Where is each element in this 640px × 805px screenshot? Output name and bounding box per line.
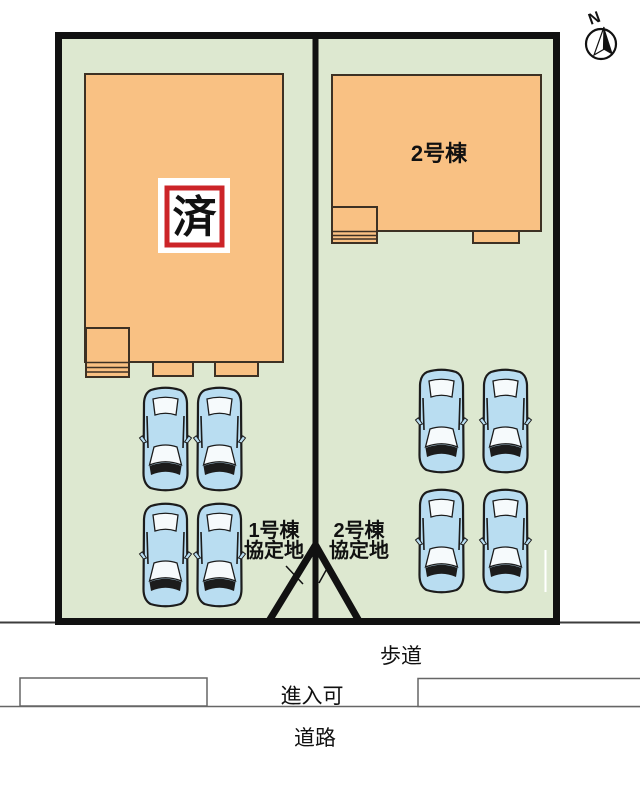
car-icon bbox=[480, 490, 532, 593]
entry-label: 進入可 bbox=[281, 685, 344, 708]
curb-rect-left bbox=[20, 678, 207, 706]
covenant-label-lot2: 2号棟 協定地 bbox=[329, 518, 389, 562]
site-plan-diagram: 済 2号棟 1号棟 協定地 2号棟 協定地 N 歩道 進 bbox=[0, 0, 640, 805]
building-1-tab bbox=[215, 362, 258, 376]
building-2: 2号棟 bbox=[332, 75, 541, 243]
sold-stamp-label: 済 bbox=[173, 193, 218, 242]
covenant-lot2-line1: 2号棟 bbox=[333, 518, 385, 542]
building-1-tab bbox=[153, 362, 193, 376]
building-1-porch bbox=[86, 328, 129, 377]
covenant-lot2-line2: 協定地 bbox=[329, 538, 389, 562]
sold-stamp: 済 bbox=[158, 178, 230, 253]
curb-rect-right bbox=[418, 679, 640, 707]
building-2-porch bbox=[332, 207, 377, 243]
car-icon bbox=[140, 388, 192, 491]
covenant-lot1-line2: 協定地 bbox=[244, 538, 304, 562]
car-icon bbox=[480, 370, 532, 473]
building-2-tab bbox=[473, 231, 519, 243]
car-icon bbox=[194, 388, 246, 491]
car-icon bbox=[140, 504, 192, 607]
covenant-lot1-line1: 1号棟 bbox=[248, 518, 300, 542]
car-icon bbox=[194, 504, 246, 607]
building-2-label: 2号棟 bbox=[411, 141, 468, 166]
sidewalk-label: 歩道 bbox=[380, 645, 422, 668]
road-label: 道路 bbox=[294, 727, 336, 750]
car-icon bbox=[416, 370, 468, 473]
covenant-label-lot1: 1号棟 協定地 bbox=[244, 518, 304, 562]
car-icon bbox=[416, 490, 468, 593]
